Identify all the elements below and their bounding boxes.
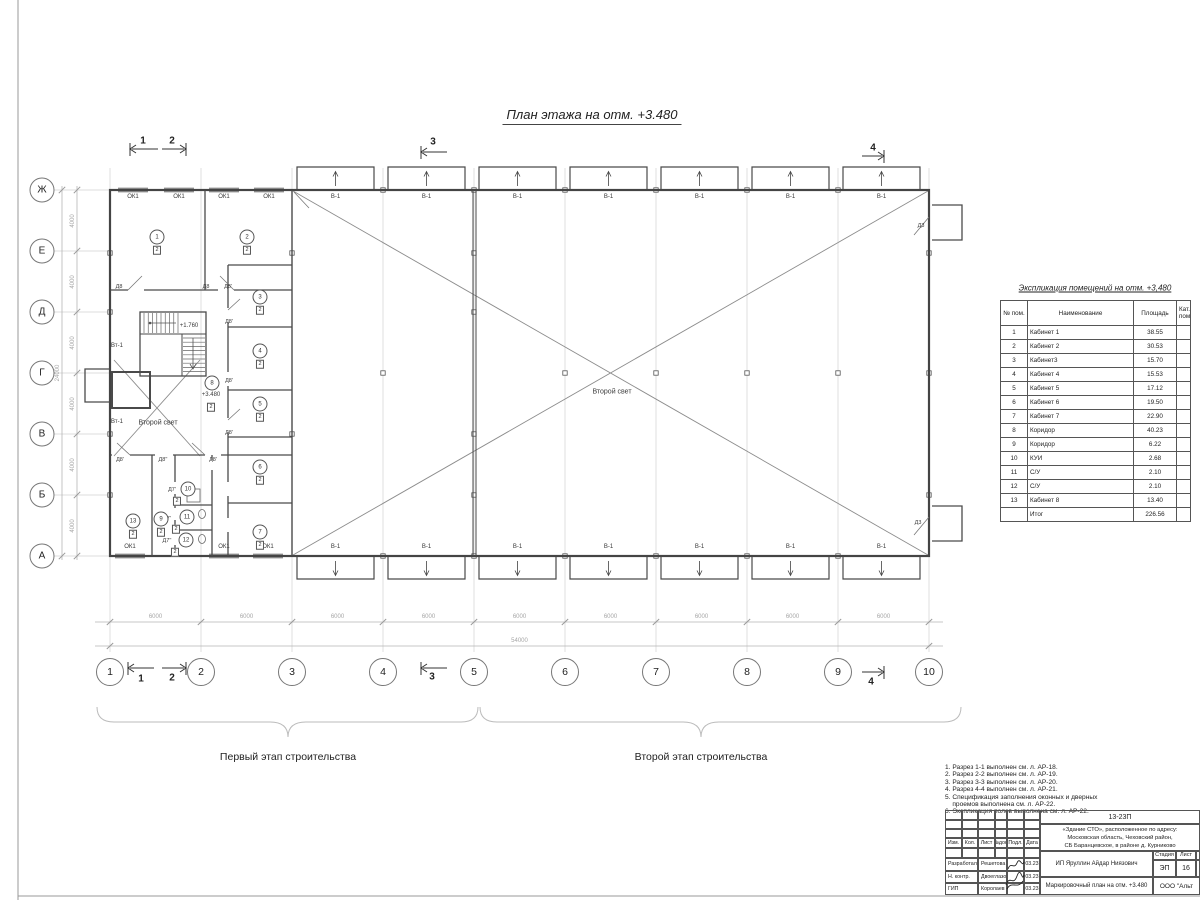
legend-cell bbox=[1177, 466, 1191, 480]
window-label: ОК1 bbox=[218, 544, 230, 550]
title-block-cell: 03.23 bbox=[1024, 858, 1040, 871]
legend-cell: 5 bbox=[1001, 382, 1028, 396]
stage-value: ЭП bbox=[1153, 860, 1176, 877]
title-block-cell: Изм. bbox=[945, 838, 962, 848]
axis-bubble-left: В bbox=[30, 422, 55, 447]
dimension-label: 4000 bbox=[70, 519, 76, 532]
title-block-cell: Дата bbox=[1024, 838, 1040, 848]
sheet-col-label: Лист bbox=[1176, 851, 1196, 860]
legend-cell: 2.68 bbox=[1134, 452, 1177, 466]
title-block-empty-cell bbox=[1007, 829, 1024, 838]
legend-col-num: № пом. bbox=[1001, 301, 1028, 326]
room-number: 11 bbox=[180, 510, 195, 525]
note-line: 1. Разрез 1-1 выполнен см. л. АР-18. bbox=[945, 764, 1097, 771]
axis-bubble-left: Г bbox=[30, 361, 55, 386]
title-block-empty-cell bbox=[1024, 848, 1040, 858]
legend-cell: 13 bbox=[1001, 494, 1028, 508]
section-mark-number: 1 bbox=[138, 674, 144, 685]
window-label: ОК1 bbox=[127, 194, 139, 200]
address-line: «Здание СТО», расположенное по адресу: bbox=[1062, 826, 1177, 834]
door-label: Д3 bbox=[915, 520, 922, 526]
legend-cell bbox=[1177, 508, 1191, 522]
room-category: 2 bbox=[256, 413, 264, 422]
gate-label: В-1 bbox=[877, 544, 886, 550]
legend-cell: Коридор bbox=[1028, 424, 1134, 438]
dimension-label: 4000 bbox=[70, 214, 76, 227]
section-mark-number: 3 bbox=[429, 672, 435, 683]
dimension-label: 6000 bbox=[604, 614, 617, 620]
note-line: 4. Разрез 4-4 выполнен см. л. АР-21. bbox=[945, 786, 1097, 793]
title-block-cell: Подл. bbox=[1007, 838, 1024, 848]
legend-cell: Кабинет 4 bbox=[1028, 368, 1134, 382]
stage-col-label: Стадия bbox=[1153, 851, 1176, 860]
door-label: Д7'' bbox=[163, 538, 172, 544]
gate-label: В-1 bbox=[422, 544, 431, 550]
door-label: Д8' bbox=[225, 319, 233, 325]
room-number: 4 bbox=[253, 344, 268, 359]
dimension-label: 6000 bbox=[513, 614, 526, 620]
room-category: 2 bbox=[243, 246, 251, 255]
room-category: 2 bbox=[153, 246, 161, 255]
axis-bubble-left: Б bbox=[30, 483, 55, 508]
dimension-total-label: 24000 bbox=[55, 365, 61, 382]
room-category: 2 bbox=[256, 541, 264, 550]
legend-cell: С/У bbox=[1028, 480, 1134, 494]
legend-cell bbox=[1177, 494, 1191, 508]
note-line: проемов выполнена см. л. АР-22. bbox=[945, 801, 1097, 808]
title-block-empty-cell bbox=[1007, 820, 1024, 829]
title-block-cell: 03.23 bbox=[1024, 883, 1040, 895]
legend-cell: 15.53 bbox=[1134, 368, 1177, 382]
dimension-label: 4000 bbox=[70, 336, 76, 349]
note-line: 5. Спецификация заполнения оконных и две… bbox=[945, 794, 1097, 801]
legend-cell bbox=[1177, 480, 1191, 494]
legend-row: 5Кабинет 517.12 bbox=[1001, 382, 1191, 396]
window-label: ОК1 bbox=[124, 544, 136, 550]
notes-list: 1. Разрез 1-1 выполнен см. л. АР-18.2. Р… bbox=[945, 764, 1097, 816]
legend-cell bbox=[1177, 326, 1191, 340]
second-light-label: Второй свет bbox=[592, 389, 631, 396]
legend-col-cat: Кат. пом. bbox=[1177, 301, 1191, 326]
legend-row: 4Кабинет 415.53 bbox=[1001, 368, 1191, 382]
level-mark: +1.760 bbox=[180, 323, 199, 329]
title-block-empty-cell bbox=[962, 820, 978, 829]
room-category: 2 bbox=[172, 525, 180, 534]
dimension-label: 6000 bbox=[877, 614, 890, 620]
room-number: 2 bbox=[240, 230, 255, 245]
dimension-label: 4000 bbox=[70, 458, 76, 471]
title-block-empty-cell bbox=[978, 848, 995, 858]
legend-cell bbox=[1177, 382, 1191, 396]
legend-cell: 17.12 bbox=[1134, 382, 1177, 396]
door-label: Д8' bbox=[224, 284, 232, 290]
legend-cell: 38.55 bbox=[1134, 326, 1177, 340]
door-label: Д8' bbox=[225, 430, 233, 436]
axis-bubble-bottom: 9 bbox=[824, 658, 852, 686]
legend-cell: 30.53 bbox=[1134, 340, 1177, 354]
gate-label: В-1 bbox=[604, 194, 613, 200]
title-block-empty-cell bbox=[1024, 829, 1040, 838]
legend-cell: 15.70 bbox=[1134, 354, 1177, 368]
room-category: 2 bbox=[207, 403, 215, 412]
title-block-empty-cell bbox=[995, 848, 1007, 858]
axis-bubble-left: Ж bbox=[30, 178, 55, 203]
title-block-empty-cell bbox=[995, 820, 1007, 829]
address-line: СБ Баранцевское, в районе д. Курниково bbox=[1064, 842, 1175, 850]
level-mark: +3.480 bbox=[202, 392, 221, 398]
title-block-empty-cell bbox=[978, 820, 995, 829]
title-block-empty-cell bbox=[995, 829, 1007, 838]
legend-cell bbox=[1177, 396, 1191, 410]
legend-cell: 7 bbox=[1001, 410, 1028, 424]
legend-cell: Итог bbox=[1028, 508, 1134, 522]
title-block: 13-23П «Здание СТО», расположенное по ад… bbox=[945, 810, 1200, 895]
title-block-empty-cell bbox=[1007, 848, 1024, 858]
legend-cell: 10 bbox=[1001, 452, 1028, 466]
section-mark-number: 2 bbox=[169, 136, 175, 147]
door-label: Д8 bbox=[203, 284, 210, 290]
title-block-empty-cell bbox=[945, 810, 962, 820]
room-category: 2 bbox=[129, 530, 137, 539]
room-category: 2 bbox=[256, 360, 264, 369]
window-label: ОК1 bbox=[173, 194, 185, 200]
room-number: 5 bbox=[253, 397, 268, 412]
door-label: Д3 bbox=[918, 223, 925, 229]
title-block-empty-cell bbox=[978, 810, 995, 820]
legend-cell: 40.23 bbox=[1134, 424, 1177, 438]
axis-bubble-bottom: 7 bbox=[642, 658, 670, 686]
legend-cell: 19.50 bbox=[1134, 396, 1177, 410]
address-line: Московская область, Чеховский район, bbox=[1067, 834, 1172, 842]
title-block-empty-cell bbox=[1007, 810, 1024, 820]
door-label: Д8 bbox=[116, 284, 123, 290]
legend-cell: Коридор bbox=[1028, 438, 1134, 452]
gate-label: В-1 bbox=[604, 544, 613, 550]
gate-label: В-1 bbox=[331, 194, 340, 200]
room-category: 2 bbox=[173, 497, 181, 506]
axis-bubble-bottom: 10 bbox=[915, 658, 943, 686]
legend-row: 8Коридор40.23 bbox=[1001, 424, 1191, 438]
cut-cell bbox=[1196, 851, 1200, 860]
dimension-total-label: 54000 bbox=[511, 638, 528, 644]
axis-bubble-bottom: 8 bbox=[733, 658, 761, 686]
legend-cell: Кабинет 7 bbox=[1028, 410, 1134, 424]
gate-label: В-1 bbox=[786, 194, 795, 200]
legend-row: 7Кабинет 722.90 bbox=[1001, 410, 1191, 424]
axis-bubble-bottom: 1 bbox=[96, 658, 124, 686]
gate-label: В-1 bbox=[786, 544, 795, 550]
title-block-cell: Королаев bbox=[978, 883, 1007, 895]
legend-row: 6Кабинет 619.50 bbox=[1001, 396, 1191, 410]
legend-cell: С/У bbox=[1028, 466, 1134, 480]
gate-label: В-1 bbox=[877, 194, 886, 200]
door-label: Д8' bbox=[209, 457, 217, 463]
dimension-label: 4000 bbox=[70, 275, 76, 288]
dimension-label: 6000 bbox=[149, 614, 162, 620]
legend-cell: 8 bbox=[1001, 424, 1028, 438]
note-line: 2. Разрез 2-2 выполнен см. л. АР-19. bbox=[945, 771, 1097, 778]
section-mark-number: 3 bbox=[430, 137, 436, 148]
page-title: План этажа на отм. +3.480 bbox=[502, 107, 681, 125]
window-label: ОК1 bbox=[263, 194, 275, 200]
legend-row: 1Кабинет 138.55 bbox=[1001, 326, 1191, 340]
object-address: «Здание СТО», расположенное по адресу: М… bbox=[1040, 824, 1200, 851]
axis-bubble-left: Д bbox=[30, 300, 55, 325]
legend-cell: Кабинет 2 bbox=[1028, 340, 1134, 354]
title-block-empty-cell bbox=[1024, 820, 1040, 829]
title-block-empty-cell bbox=[945, 820, 962, 829]
gate-label: В-1 bbox=[331, 544, 340, 550]
legend-cell bbox=[1177, 410, 1191, 424]
dimension-label: 4000 bbox=[70, 397, 76, 410]
legend-cell bbox=[1177, 438, 1191, 452]
gate-label: В-1 bbox=[695, 544, 704, 550]
legend-cell: 2.10 bbox=[1134, 480, 1177, 494]
window-label: ОК1 bbox=[218, 194, 230, 200]
room-number: 1 bbox=[150, 230, 165, 245]
title-block-cell: №док. bbox=[995, 838, 1007, 848]
legend-cell bbox=[1177, 368, 1191, 382]
legend-cell: 2 bbox=[1001, 340, 1028, 354]
legend-row: 13Кабинет 813.40 bbox=[1001, 494, 1191, 508]
title-block-empty-cell bbox=[945, 848, 962, 858]
section-mark-number: 1 bbox=[140, 136, 146, 147]
doc-number: 13-23П bbox=[1040, 810, 1200, 824]
axis-bubble-left: А bbox=[30, 544, 55, 569]
title-block-empty-cell bbox=[1024, 810, 1040, 820]
legend-cell: КУИ bbox=[1028, 452, 1134, 466]
legend-cell: Кабинет 8 bbox=[1028, 494, 1134, 508]
axis-bubble-bottom: 5 bbox=[460, 658, 488, 686]
note-line: 3. Разрез 3-3 выполнен см. л. АР-20. bbox=[945, 779, 1097, 786]
door-label: Д8'' bbox=[159, 457, 168, 463]
legend-cell bbox=[1001, 508, 1028, 522]
room-category: 2 bbox=[171, 548, 179, 557]
cut-cell bbox=[1196, 860, 1200, 877]
legend-cell: 9 bbox=[1001, 438, 1028, 452]
doc-title: Маркировочный план на отм. +3.480 bbox=[1040, 877, 1153, 895]
title-block-empty-cell bbox=[995, 810, 1007, 820]
legend-cell: 1 bbox=[1001, 326, 1028, 340]
company-name: ООО "Альт bbox=[1153, 877, 1200, 895]
axis-bubble-bottom: 3 bbox=[278, 658, 306, 686]
legend-cell bbox=[1177, 340, 1191, 354]
legend-cell bbox=[1177, 452, 1191, 466]
door-label: Д8' bbox=[116, 457, 124, 463]
room-number: 8 bbox=[205, 376, 220, 391]
title-block-cell: Кол. bbox=[962, 838, 978, 848]
title-block-empty-cell bbox=[962, 810, 978, 820]
gate-label: В-1 bbox=[513, 194, 522, 200]
gate-label: В-1 bbox=[513, 544, 522, 550]
vent-label: Вт-1 bbox=[111, 343, 123, 349]
legend-row: 3Кабинет315.70 bbox=[1001, 354, 1191, 368]
legend-cell bbox=[1177, 354, 1191, 368]
dimension-label: 6000 bbox=[422, 614, 435, 620]
room-category: 2 bbox=[256, 306, 264, 315]
stage-second-label: Второй этап строительства bbox=[635, 751, 768, 763]
legend-row: 11С/У2.10 bbox=[1001, 466, 1191, 480]
legend-cell: 11 bbox=[1001, 466, 1028, 480]
sheet-value: 16 bbox=[1176, 860, 1196, 877]
title-block-cell: Н. контр. bbox=[945, 871, 978, 883]
legend-cell: 226.56 bbox=[1134, 508, 1177, 522]
room-number: 6 bbox=[253, 460, 268, 475]
legend-cell: Кабинет 6 bbox=[1028, 396, 1134, 410]
legend-cell: 6.22 bbox=[1134, 438, 1177, 452]
legend-cell: Кабинет3 bbox=[1028, 354, 1134, 368]
client-name: ИП Яруллин Айдар Ниязович bbox=[1040, 851, 1153, 877]
title-block-cell: ГИП bbox=[945, 883, 978, 895]
legend-col-area: Площадь bbox=[1134, 301, 1177, 326]
legend-row: 10КУИ2.68 bbox=[1001, 452, 1191, 466]
title-block-cell: Лист bbox=[978, 838, 995, 848]
title-block-empty-cell bbox=[945, 829, 962, 838]
room-number: 12 bbox=[179, 533, 194, 548]
section-mark-number: 2 bbox=[169, 673, 175, 684]
legend-table-title: Экспликация помещений на отм. +3,480 bbox=[1019, 284, 1172, 293]
room-category: 2 bbox=[256, 476, 264, 485]
legend-cell: 6 bbox=[1001, 396, 1028, 410]
room-number: 3 bbox=[253, 290, 268, 305]
room-category: 2 bbox=[157, 528, 165, 537]
door-label: Д8' bbox=[225, 378, 233, 384]
legend-cell: 3 bbox=[1001, 354, 1028, 368]
legend-cell: Кабинет 5 bbox=[1028, 382, 1134, 396]
title-block-cell: Решетова bbox=[978, 858, 1007, 871]
axis-bubble-bottom: 2 bbox=[187, 658, 215, 686]
legend-cell bbox=[1177, 424, 1191, 438]
room-number: 9 bbox=[154, 512, 169, 527]
dimension-label: 6000 bbox=[331, 614, 344, 620]
title-block-empty-cell bbox=[962, 829, 978, 838]
signature bbox=[1004, 870, 1026, 892]
legend-table: № пом. Наименование Площадь Кат. пом. 1К… bbox=[1000, 300, 1191, 522]
legend-cell: 13.40 bbox=[1134, 494, 1177, 508]
legend-row: 9Коридор6.22 bbox=[1001, 438, 1191, 452]
legend-cell: 12 bbox=[1001, 480, 1028, 494]
axis-bubble-bottom: 6 bbox=[551, 658, 579, 686]
dimension-label: 6000 bbox=[240, 614, 253, 620]
title-block-cell: 03.23 bbox=[1024, 871, 1040, 883]
dimension-label: 6000 bbox=[695, 614, 708, 620]
axis-bubble-bottom: 4 bbox=[369, 658, 397, 686]
stage-first-label: Первый этап строительства bbox=[220, 751, 356, 763]
gate-label: В-1 bbox=[422, 194, 431, 200]
legend-row: 2Кабинет 230.53 bbox=[1001, 340, 1191, 354]
legend-col-name: Наименование bbox=[1028, 301, 1134, 326]
legend-cell: 4 bbox=[1001, 368, 1028, 382]
legend-cell: 22.90 bbox=[1134, 410, 1177, 424]
section-mark-number: 4 bbox=[868, 677, 874, 688]
legend-cell: 2.10 bbox=[1134, 466, 1177, 480]
legend-row: 12С/У2.10 bbox=[1001, 480, 1191, 494]
legend-row: Итог226.56 bbox=[1001, 508, 1191, 522]
legend-cell: Кабинет 1 bbox=[1028, 326, 1134, 340]
room-number: 13 bbox=[126, 514, 141, 529]
dimension-label: 6000 bbox=[786, 614, 799, 620]
title-block-cell: Разработал bbox=[945, 858, 978, 871]
gate-label: В-1 bbox=[695, 194, 704, 200]
title-block-empty-cell bbox=[962, 848, 978, 858]
title-block-cell: Двоеглазов bbox=[978, 871, 1007, 883]
room-number: 7 bbox=[253, 525, 268, 540]
door-label: Д7' bbox=[168, 487, 176, 493]
title-block-empty-cell bbox=[978, 829, 995, 838]
second-light-label: Второй свет bbox=[138, 420, 177, 427]
axis-bubble-left: Е bbox=[30, 239, 55, 264]
room-number: 10 bbox=[181, 482, 196, 497]
drawing-sheet: План этажа на отм. +3.480 Первый этап ст… bbox=[0, 0, 1200, 900]
vent-label: Вт-1 bbox=[111, 419, 123, 425]
section-mark-number: 4 bbox=[870, 143, 876, 154]
